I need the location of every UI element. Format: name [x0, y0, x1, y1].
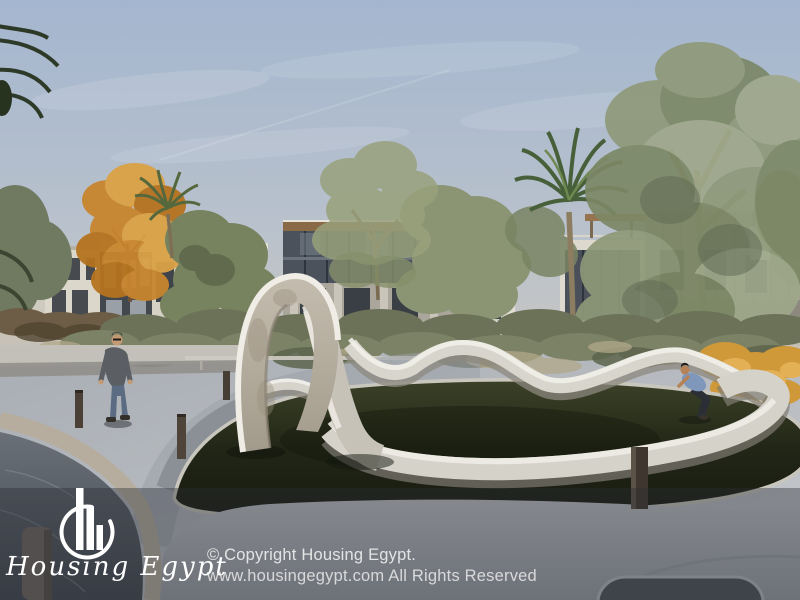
architectural-render: Housing Egypt © Copyright Housing Egypt.… — [0, 0, 800, 600]
copyright-line1: © Copyright Housing Egypt. — [207, 545, 537, 566]
bollard-light — [223, 371, 230, 400]
buildings-bars-logo-icon — [0, 488, 190, 600]
bollard-light — [177, 414, 186, 459]
watermark-band: Housing Egypt © Copyright Housing Egypt.… — [0, 488, 800, 600]
bollard-light — [75, 390, 83, 428]
housing-egypt-logo: Housing Egypt — [0, 488, 190, 600]
copyright-block: © Copyright Housing Egypt. www.housingeg… — [207, 545, 537, 587]
brand-name: Housing Egypt — [6, 552, 186, 582]
copyright-line2: www.housingegypt.com All Rights Reserved — [207, 566, 537, 587]
